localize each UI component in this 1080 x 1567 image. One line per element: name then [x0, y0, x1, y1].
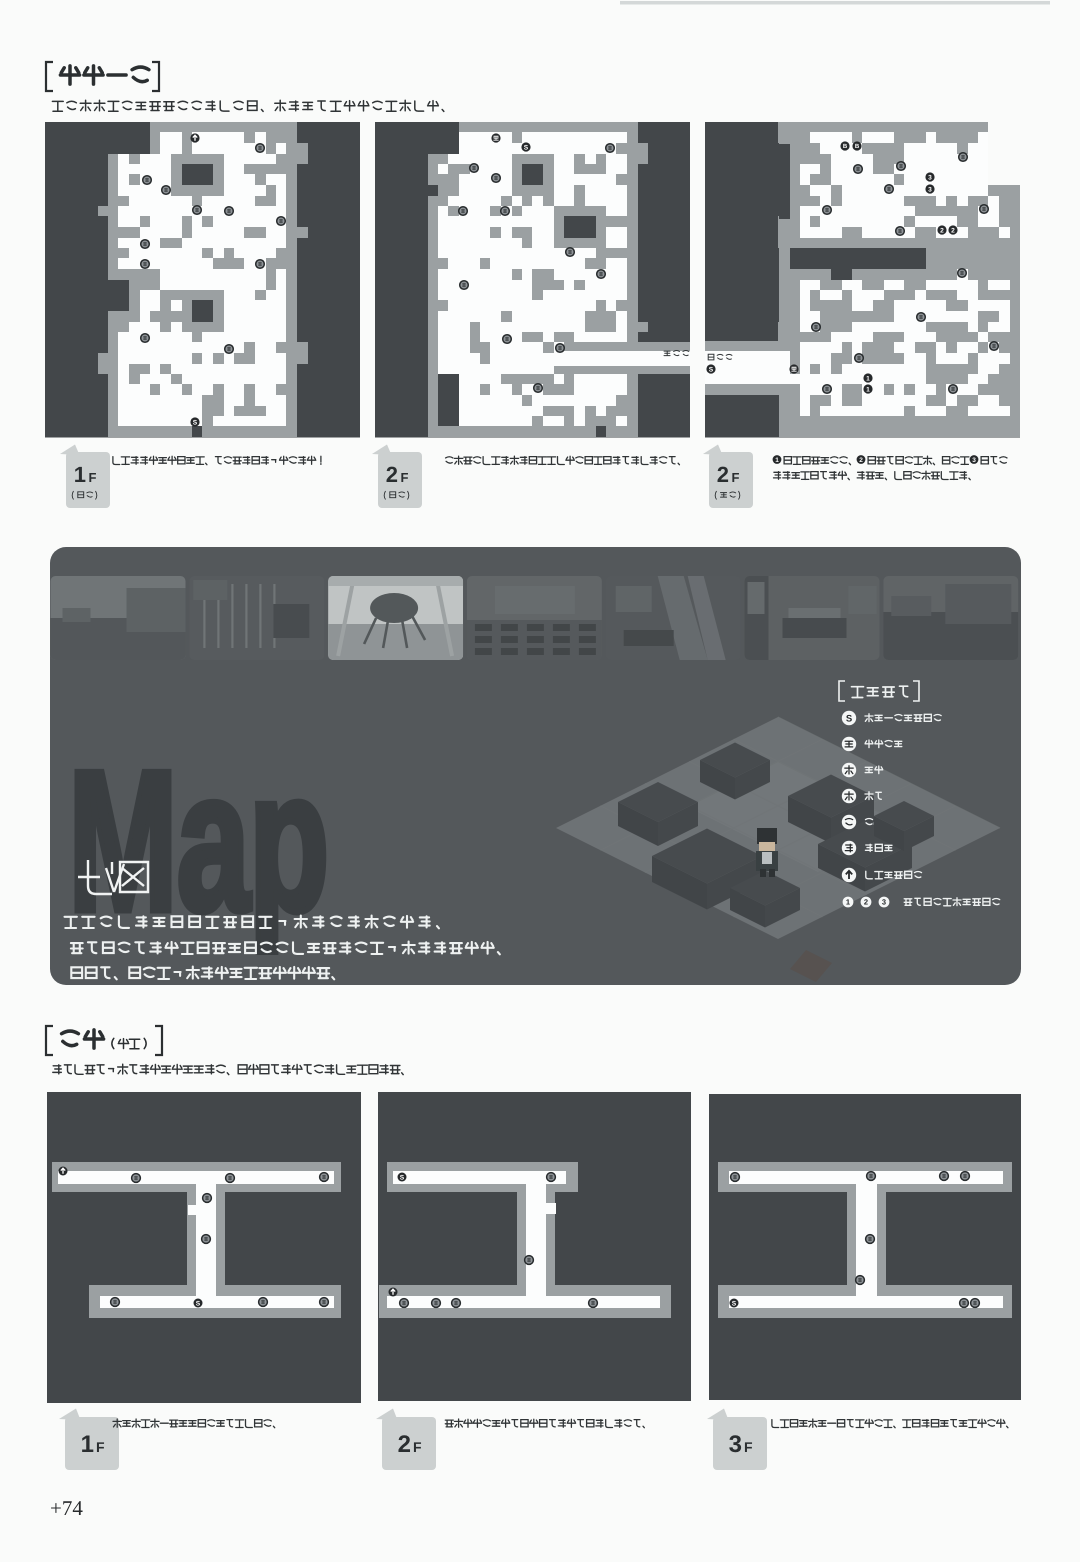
svg-text:2: 2: [864, 898, 868, 907]
svg-text:B: B: [843, 143, 848, 150]
svg-text:2: 2: [859, 457, 863, 464]
svg-text:F: F: [96, 1439, 105, 1455]
svg-text:1: 1: [846, 898, 850, 907]
svg-text:F: F: [401, 470, 409, 485]
svg-text:S: S: [709, 366, 714, 373]
svg-text:Map: Map: [68, 730, 328, 953]
svg-text:3: 3: [972, 457, 976, 464]
svg-text:S: S: [196, 1300, 201, 1307]
svg-text:2: 2: [951, 227, 955, 234]
svg-text:3: 3: [928, 186, 932, 193]
svg-text:F: F: [744, 1439, 753, 1455]
svg-text:+74: +74: [50, 1496, 83, 1520]
svg-text:B: B: [855, 143, 860, 150]
svg-text:1: 1: [866, 386, 870, 393]
svg-text:S: S: [732, 1300, 737, 1307]
svg-text:1: 1: [775, 457, 779, 464]
svg-text:S: S: [846, 713, 852, 724]
svg-text:1: 1: [866, 375, 870, 382]
svg-text:F: F: [89, 470, 97, 485]
svg-text:3: 3: [729, 1431, 742, 1458]
svg-text:1: 1: [81, 1431, 94, 1458]
svg-text:2: 2: [386, 462, 398, 487]
svg-text:1: 1: [74, 462, 86, 487]
svg-text:F: F: [413, 1439, 422, 1455]
svg-text:2: 2: [398, 1431, 411, 1458]
svg-text:F: F: [732, 470, 740, 485]
svg-text:S: S: [193, 419, 198, 426]
svg-text:S: S: [524, 144, 529, 151]
svg-text:S: S: [400, 1174, 405, 1181]
svg-text:2: 2: [717, 462, 729, 487]
svg-text:3: 3: [882, 898, 886, 907]
svg-text:3: 3: [928, 174, 932, 181]
svg-text:2: 2: [940, 227, 944, 234]
